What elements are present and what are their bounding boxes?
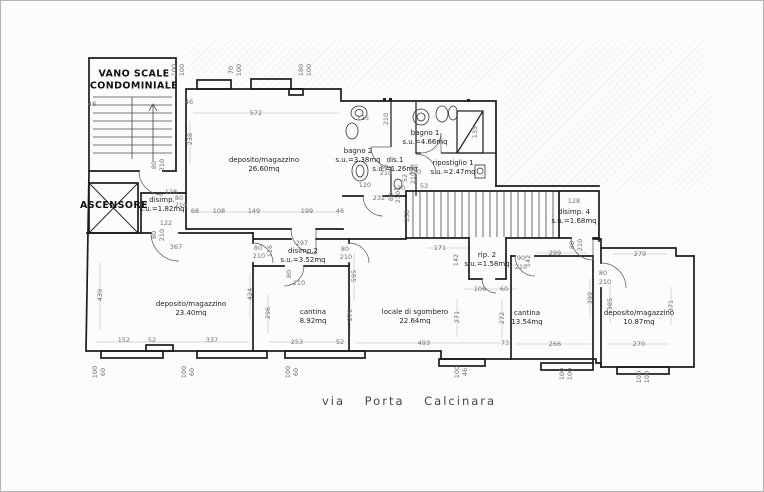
room-area: 13.54mq xyxy=(511,318,542,327)
room-name: locale di sgombero xyxy=(382,308,448,317)
dimension-label: 100 xyxy=(284,366,292,378)
dimension-label: 135 xyxy=(471,126,479,138)
dimension-label: 210 xyxy=(253,252,265,260)
dimension-label: 68 xyxy=(191,207,199,215)
dimension-label: 80 xyxy=(285,270,293,278)
dimension-label: 210 xyxy=(158,159,166,171)
dimension-label: 595 xyxy=(350,270,358,282)
dimension-label: 210 xyxy=(293,279,305,287)
dimension-label: 210 xyxy=(515,263,527,271)
dimension-label: 210 xyxy=(394,191,402,203)
dimension-label: 46 xyxy=(336,207,344,215)
dimension-label: 199 xyxy=(301,207,313,215)
dimension-label: 100 xyxy=(91,366,99,378)
dimension-label: 367 xyxy=(170,243,182,251)
dimension-label: 371 xyxy=(667,300,675,312)
dimension-label: 108 xyxy=(213,207,225,215)
room-area: 8.92mq xyxy=(300,317,327,326)
dimension-label: 158 xyxy=(403,210,411,222)
dimension-label: 210 xyxy=(175,201,187,209)
dimension-label: 60 xyxy=(99,368,107,376)
dimension-label: 493 xyxy=(418,339,430,347)
room-area: s.u.=2.47mq xyxy=(430,168,475,177)
dimension-label: 100 xyxy=(170,64,178,76)
dimension-label: 279 xyxy=(346,309,354,321)
dimension-label: 116 xyxy=(266,245,274,257)
dimension-label: 100 xyxy=(180,366,188,378)
room-name: ASCENSORE xyxy=(80,200,148,212)
dimension-label: 272 xyxy=(498,312,506,324)
stair-direction-arrow xyxy=(149,104,157,161)
room-area: 22.64mq xyxy=(399,317,430,326)
dimension-label: 337 xyxy=(206,336,218,344)
bidet-icon xyxy=(449,106,458,120)
room-label-disimp-2: disimp.2 s.u.=3.52mq xyxy=(280,247,325,265)
dimension-label: 149 xyxy=(248,207,260,215)
dimension-label: 80 xyxy=(150,231,158,239)
dimension-label: 80 xyxy=(568,241,576,249)
room-area: 26.60mq xyxy=(248,165,279,174)
room-name: disimp. 4 xyxy=(558,208,590,217)
room-label-cantina-8: cantina 8.92mq xyxy=(300,308,327,326)
floor-plan: VANO SCALE CONDOMINIALE ASCENSORE deposi… xyxy=(0,0,764,492)
walls xyxy=(86,58,694,374)
room-name: VANO SCALE xyxy=(98,69,169,81)
dimension-label: 210 xyxy=(382,113,390,125)
dimension-label: 80 xyxy=(254,244,262,252)
dimension-label: 424 xyxy=(246,288,254,300)
dimension-label: 73 xyxy=(501,339,509,347)
dimension-label: 128 xyxy=(568,197,580,205)
room-area: 10.87mq xyxy=(623,318,654,327)
dimension-label: 210 xyxy=(158,229,166,241)
toilet-icon xyxy=(436,106,448,122)
room-name: deposito/magazzino xyxy=(229,156,299,165)
dimension-label: 210 xyxy=(576,239,584,251)
dimension-label: 60 xyxy=(188,368,196,376)
room-name: dis.1 xyxy=(387,156,404,165)
room-name: bagno 2 xyxy=(344,147,373,156)
dimension-label: 106 xyxy=(474,285,486,293)
room-name: cantina xyxy=(300,308,326,317)
room-area: s.u.=1.68mq xyxy=(551,217,596,226)
dimension-label: 80 xyxy=(150,161,158,169)
dimension-label: 210 xyxy=(340,253,352,261)
dimension-label: 297 xyxy=(296,239,308,247)
room-name: disimp.2 xyxy=(288,247,318,256)
room-name: rip. 2 xyxy=(478,251,496,260)
dimension-label: 279 xyxy=(634,250,646,258)
room-label-ripostiglio-1: ripostiglio 1 s.u.=2.47mq xyxy=(430,159,475,177)
dimension-label: 100 xyxy=(635,371,643,383)
dimension-label: 232 xyxy=(373,194,385,202)
room-label-locale-di-sgombero: locale di sgombero 22.64mq xyxy=(382,308,448,326)
room-name: deposito/magazzino xyxy=(604,309,674,318)
dimension-label: 90 xyxy=(517,254,525,262)
dimension-label: 180 xyxy=(297,64,305,76)
dimension-label: 296 xyxy=(264,307,272,319)
dimension-label: 100 xyxy=(558,368,566,380)
dimension-label: 52 xyxy=(148,336,156,344)
dimension-label: 53 xyxy=(420,182,428,190)
dimension-label: 100 xyxy=(235,64,243,76)
dimension-label: 152 xyxy=(118,336,130,344)
boiler-icon xyxy=(475,165,485,178)
dimension-label: 270 xyxy=(633,340,645,348)
street-name: via Porta Calcinara xyxy=(322,394,496,408)
room-name: bagno 1 xyxy=(411,129,440,138)
shower-diagonal xyxy=(457,111,483,153)
dimension-label: 142 xyxy=(452,254,460,266)
dimension-label: 100 xyxy=(566,368,574,380)
dimension-label: 171 xyxy=(434,244,446,252)
room-label-deposito-magazzino-26: deposito/magazzino 26.60mq xyxy=(229,156,299,174)
dimension-label: 52 xyxy=(401,174,409,182)
room-label-rip-2: rip. 2 s.u.=1.58mq xyxy=(464,251,509,269)
room-label-deposito-magazzino-10: deposito/magazzino 10.87mq xyxy=(604,309,674,327)
dimension-label: 48 xyxy=(88,100,96,108)
dimension-label: 120 xyxy=(359,181,371,189)
room-label-cantina-13: cantina 13.54mq xyxy=(511,309,542,327)
room-label-vano-scale-condominiale: VANO SCALE CONDOMINIALE xyxy=(90,69,178,94)
dimension-label: 125 xyxy=(357,114,369,122)
dimension-label: 210 xyxy=(599,278,611,286)
room-name: CONDOMINIALE xyxy=(90,81,178,93)
room-name: cantina xyxy=(514,309,540,318)
dimension-label: 266 xyxy=(549,340,561,348)
dimension-label: 210 xyxy=(380,169,392,177)
dimension-label: 271 xyxy=(453,311,461,323)
room-label-bagno-1: bagno 1 s.u.=4.66mq xyxy=(402,129,447,147)
dimension-label: 100 xyxy=(453,366,461,378)
dimension-label: 46 xyxy=(461,368,469,376)
dimension-label: 80 xyxy=(599,269,607,277)
room-name: disimp. xyxy=(149,196,174,205)
room-label-deposito-magazzino-23: deposito/magazzino 23.40mq xyxy=(156,300,226,318)
dimension-label: 253 xyxy=(291,338,303,346)
dimension-label: 399 xyxy=(586,292,594,304)
dimension-label: 122 xyxy=(160,219,172,227)
dimension-label: 439 xyxy=(96,289,104,301)
dimension-label: 385 xyxy=(606,298,614,310)
dimension-label: 238 xyxy=(186,133,194,145)
dimension-label: 100 xyxy=(178,64,186,76)
room-name: deposito/magazzino xyxy=(156,300,226,309)
dimension-label: 299 xyxy=(549,249,561,257)
dimension-label: 100 xyxy=(305,64,313,76)
room-area: 23.40mq xyxy=(175,309,206,318)
toilet-icon xyxy=(346,123,358,139)
dimension-label: 572 xyxy=(250,109,262,117)
dimension-label: 210 xyxy=(409,172,417,184)
room-area: s.u.=1.58mq xyxy=(464,260,509,269)
dimension-label: 60 xyxy=(292,368,300,376)
dimension-label: 52 xyxy=(336,338,344,346)
dimension-label: 80 xyxy=(341,245,349,253)
room-label-ascensore: ASCENSORE xyxy=(80,200,148,212)
room-area: s.u.=4.66mq xyxy=(402,138,447,147)
dimension-label: 70 xyxy=(227,66,235,74)
dimension-label: 46 xyxy=(185,98,193,106)
dimension-label: 60 xyxy=(500,285,508,293)
dimension-label: 100 xyxy=(643,371,651,383)
room-name: ripostiglio 1 xyxy=(432,159,473,168)
room-label-disimp-4: disimp. 4 s.u.=1.68mq xyxy=(551,208,596,226)
room-area: s.u.=3.52mq xyxy=(280,256,325,265)
